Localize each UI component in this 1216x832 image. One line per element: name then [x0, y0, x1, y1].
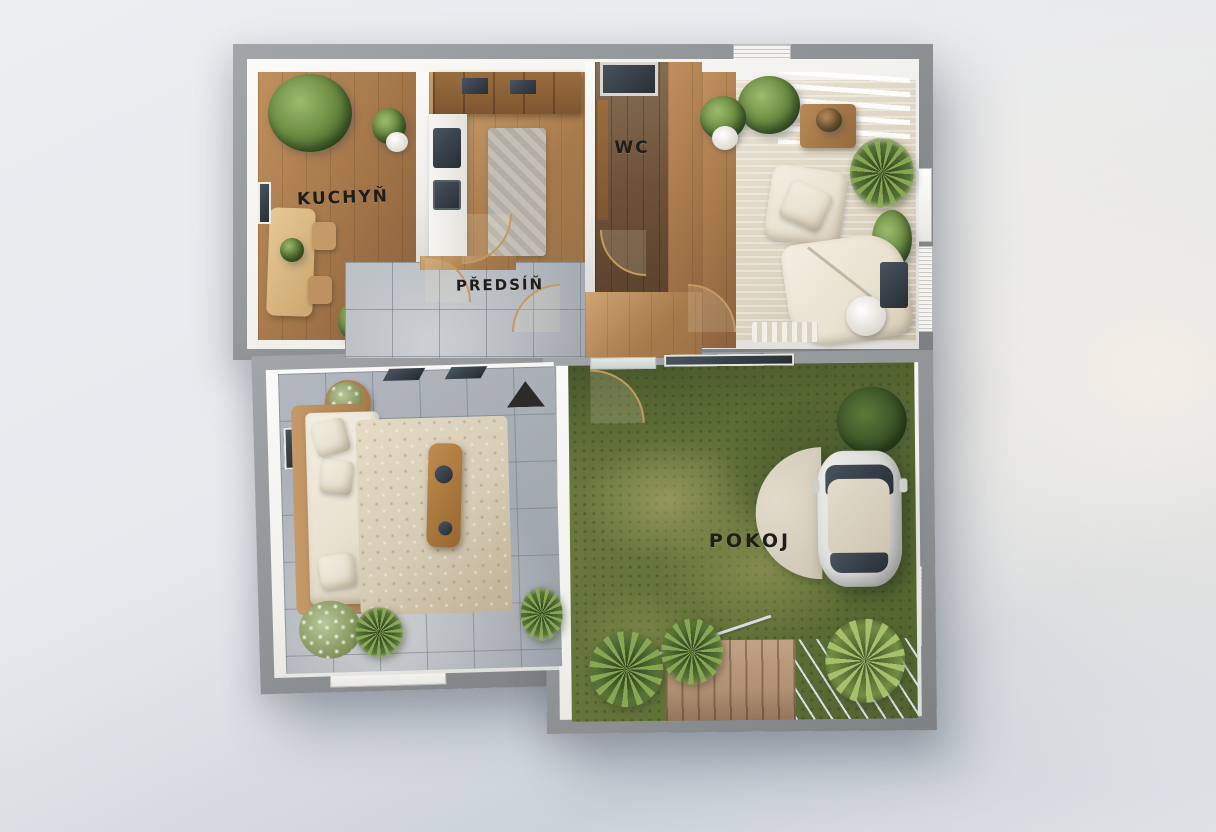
kitchen-chair-bottom [308, 276, 332, 304]
living-sofa-pillow-3 [317, 552, 357, 590]
bedroom-plant-pot [712, 126, 738, 150]
kitchen-wall-frame [258, 182, 271, 224]
car-mirror-right [899, 478, 907, 492]
pantry-cooktop [433, 128, 461, 168]
kitchen-corner-plant-icon [268, 74, 352, 152]
kitchen-plant-pot [386, 132, 408, 152]
wc-door-top [600, 62, 658, 96]
living-skylight-right [445, 366, 488, 379]
kitchen-chair-top [312, 222, 336, 250]
bedroom-palm-right-icon [850, 138, 914, 208]
pantry-upper-cabinets [433, 72, 581, 114]
hall-center-floor [585, 292, 702, 358]
living-skylight-left [383, 368, 426, 381]
yard-palm-left-1-icon [589, 631, 664, 708]
yard-plant-pot-corner-icon [836, 386, 907, 455]
floor-plan-scene: KUCHYŇ WC PŘEDSÍŇ POKOJ [0, 0, 1216, 832]
living-room-group [278, 358, 567, 676]
yard-window-frame-top [664, 353, 794, 366]
bedroom-corner-unit [880, 262, 908, 308]
car [817, 450, 902, 587]
wall-kitchen-pantry [416, 72, 429, 264]
pantry-sink [433, 180, 461, 210]
car-mirror-left [811, 479, 819, 493]
hallway-label: PŘEDSÍŇ [440, 275, 560, 295]
living-sofa-pillow-2 [319, 459, 355, 496]
wc-side-cabinet [595, 100, 608, 220]
wc-label: WC [600, 138, 664, 158]
yard-palm-left-2-icon [661, 618, 724, 685]
bedroom-table-plant-icon [816, 108, 842, 132]
pantry-cabinet-appliance-left [462, 78, 488, 94]
car-rear-window [830, 552, 888, 573]
bedroom-runner-rug [752, 322, 818, 342]
kitchen-label: KUCHYŇ [288, 186, 399, 210]
wall-pantry-wc [585, 62, 595, 292]
kitchen-table-plant-icon [280, 238, 304, 262]
yard-glass-door [590, 357, 656, 370]
yard-palm-right-icon [825, 618, 906, 703]
bedroom-plant-top-left-icon [738, 76, 800, 134]
pantry-cabinet-appliance-right [510, 80, 536, 94]
car-roof [827, 478, 890, 557]
room-label: POKOJ [695, 530, 805, 552]
